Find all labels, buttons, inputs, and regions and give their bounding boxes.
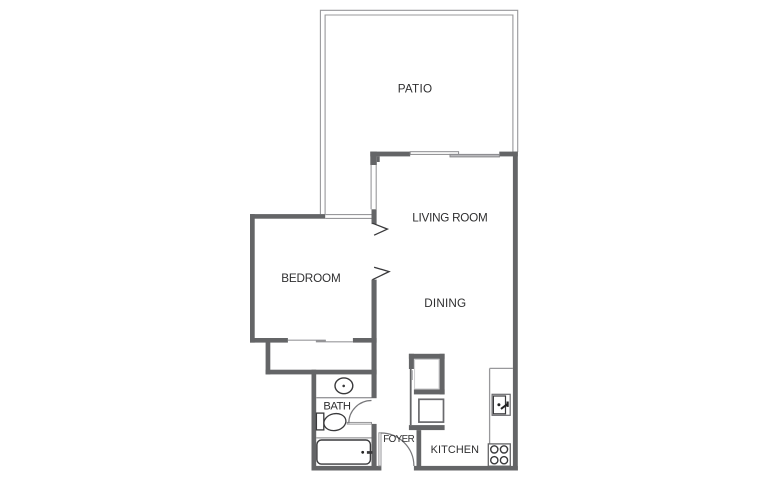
svg-text:BEDROOM: BEDROOM xyxy=(281,272,340,285)
svg-text:LIVING ROOM: LIVING ROOM xyxy=(412,212,487,225)
svg-text:DINING: DINING xyxy=(424,297,466,310)
svg-text:PATIO: PATIO xyxy=(398,82,433,95)
svg-text:KITCHEN: KITCHEN xyxy=(431,444,480,456)
svg-text:FOYER: FOYER xyxy=(383,434,414,445)
svg-text:BATH: BATH xyxy=(323,400,350,412)
